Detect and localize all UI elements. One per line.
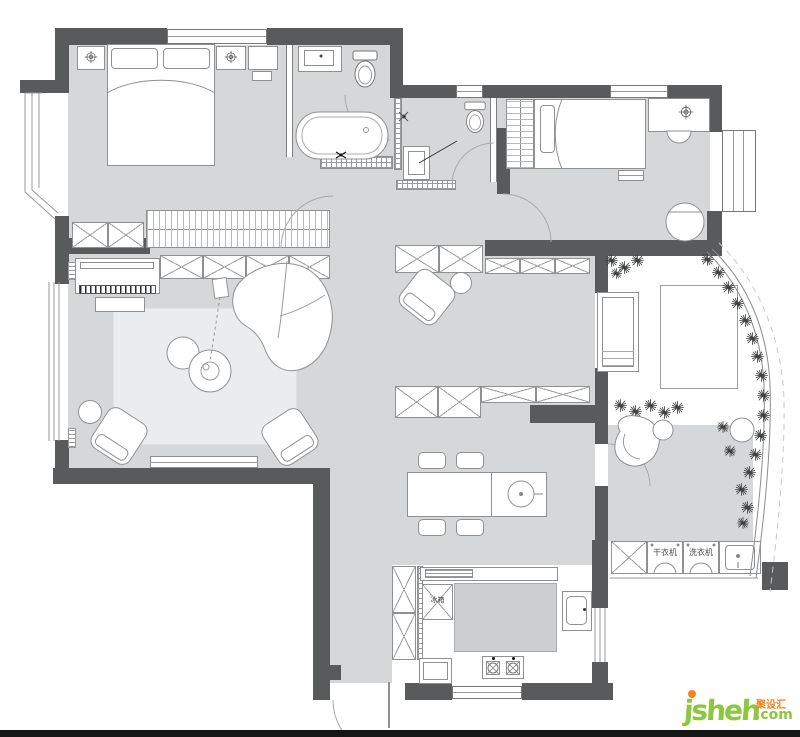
dining-chair-4 <box>456 519 484 536</box>
wall-bedroom2-right-lower <box>707 211 722 256</box>
dish-rack <box>425 569 473 578</box>
dresser-box <box>252 71 272 81</box>
burner-right <box>506 661 520 675</box>
partition-second-bath <box>490 98 497 182</box>
wall-dining-balcony-jut <box>530 405 596 423</box>
kitchen-faucet <box>583 608 586 611</box>
stove-knob-left <box>492 657 495 660</box>
wardrobe-master <box>146 210 330 248</box>
floor-plan: 冰箱 干衣机 洗衣机 jsheh 聚设汇 .com <box>0 0 800 737</box>
vanity-basin <box>304 50 334 66</box>
dining-chair-2 <box>456 452 484 469</box>
wall-living-bottom <box>53 468 330 484</box>
desk-bedroom2 <box>648 98 710 132</box>
dryer <box>647 541 683 574</box>
pillow-left <box>111 48 158 69</box>
wall-second-bath-top <box>400 85 456 98</box>
pantry-cabinet-1 <box>392 566 416 613</box>
dryer-label: 干衣机 <box>647 549 683 557</box>
wall-top-right <box>267 28 403 45</box>
bottom-border-bar <box>0 730 800 737</box>
piano-bench <box>95 297 145 312</box>
closet-cabinet-2 <box>108 222 144 248</box>
dining-table <box>407 472 547 517</box>
pillow-bedroom2 <box>540 105 555 153</box>
fridge-label: 冰箱 <box>422 597 453 604</box>
window-master-bedroom-top <box>167 29 267 44</box>
kitchen-island <box>454 583 557 652</box>
hall-cabinet-bottom-4 <box>536 386 590 403</box>
hall-side-table <box>450 272 472 294</box>
hall-cabinet-bottom-1 <box>395 386 438 418</box>
tv-console <box>150 456 258 468</box>
wall-top-left <box>55 28 167 45</box>
washer <box>683 541 719 574</box>
wall-hall-balcony-upper <box>595 253 608 293</box>
nightstand-right <box>216 46 246 70</box>
wall-kitchen-right-upper <box>592 540 608 608</box>
hall-cabinet-bottom-3 <box>481 386 536 403</box>
hall-cabinet-top-1 <box>395 245 439 273</box>
wardrobe-bedroom2 <box>506 99 534 169</box>
wall-entry-notch <box>328 665 341 680</box>
tile-strip-second-bath <box>396 180 456 190</box>
hall-cabinet-top-5 <box>555 258 590 274</box>
partition-master-bath <box>286 45 293 157</box>
hall-cabinet-bottom-2 <box>438 386 481 418</box>
laundry-sink-basin <box>725 545 755 570</box>
underbed-shelf <box>618 170 644 181</box>
window-second-bath <box>456 85 483 98</box>
dining-table-divider <box>491 473 492 516</box>
laundry-cabinet <box>611 541 647 574</box>
washer-label: 洗衣机 <box>683 549 719 557</box>
hall-cabinet-top-2 <box>439 245 483 273</box>
living-cabinet-4 <box>289 255 330 279</box>
wall-kitchen-right-lower <box>592 662 608 700</box>
balcony-mat <box>660 285 738 389</box>
closet-cabinet-1 <box>72 222 108 248</box>
window-kitchen-right <box>595 608 605 662</box>
tile-strip-master-bath <box>320 156 393 169</box>
bay-window-bedroom2 <box>722 130 756 212</box>
living-side-table <box>78 400 102 424</box>
floor-balcony-lower <box>608 425 753 541</box>
balcony-steps <box>602 346 634 366</box>
window-living-left <box>49 282 59 441</box>
living-cabinet-1 <box>160 255 203 279</box>
oven-door <box>423 662 448 680</box>
hall-cabinet-top-3 <box>485 258 520 274</box>
wall-kitchen-bottom-left <box>405 683 452 700</box>
dresser <box>248 46 278 70</box>
watermark-dot-icon <box>688 690 696 698</box>
wall-balcony-pillar <box>762 562 788 590</box>
watermark-tld: .com <box>755 707 793 723</box>
bay-window-master-left <box>25 93 58 219</box>
nightstand-left <box>77 46 105 70</box>
pantry-cabinet-2 <box>392 613 416 660</box>
window-bedroom2-top <box>610 85 668 98</box>
stove-knob-right <box>512 657 515 660</box>
living-cabinet-3 <box>246 255 289 279</box>
piano-lid <box>80 262 154 269</box>
wall-bedroom2-top-left <box>483 85 610 98</box>
wall-bedroom2-bottom <box>485 240 722 256</box>
dining-chair-1 <box>418 452 446 469</box>
dining-chair-3 <box>418 519 446 536</box>
watermark-brand: jsheh <box>683 694 760 727</box>
radiator-bottom <box>68 428 76 448</box>
piano-keys <box>79 285 156 294</box>
pillow-right <box>163 48 210 69</box>
floor-lamp-base <box>212 277 230 299</box>
tile-wall-shared-bath <box>394 98 402 170</box>
wall-hall-balcony-lower <box>595 486 608 542</box>
wall-hall-balcony-mid <box>595 368 608 444</box>
window-kitchen-bottom <box>452 686 522 699</box>
sink-basin-second-bath <box>408 151 425 175</box>
burner-left <box>486 661 500 675</box>
wall-left-upper <box>55 28 69 93</box>
living-cabinet-2 <box>203 255 246 279</box>
hall-cabinet-top-4 <box>520 258 555 274</box>
watermark: jsheh 聚设汇 .com <box>684 692 796 734</box>
